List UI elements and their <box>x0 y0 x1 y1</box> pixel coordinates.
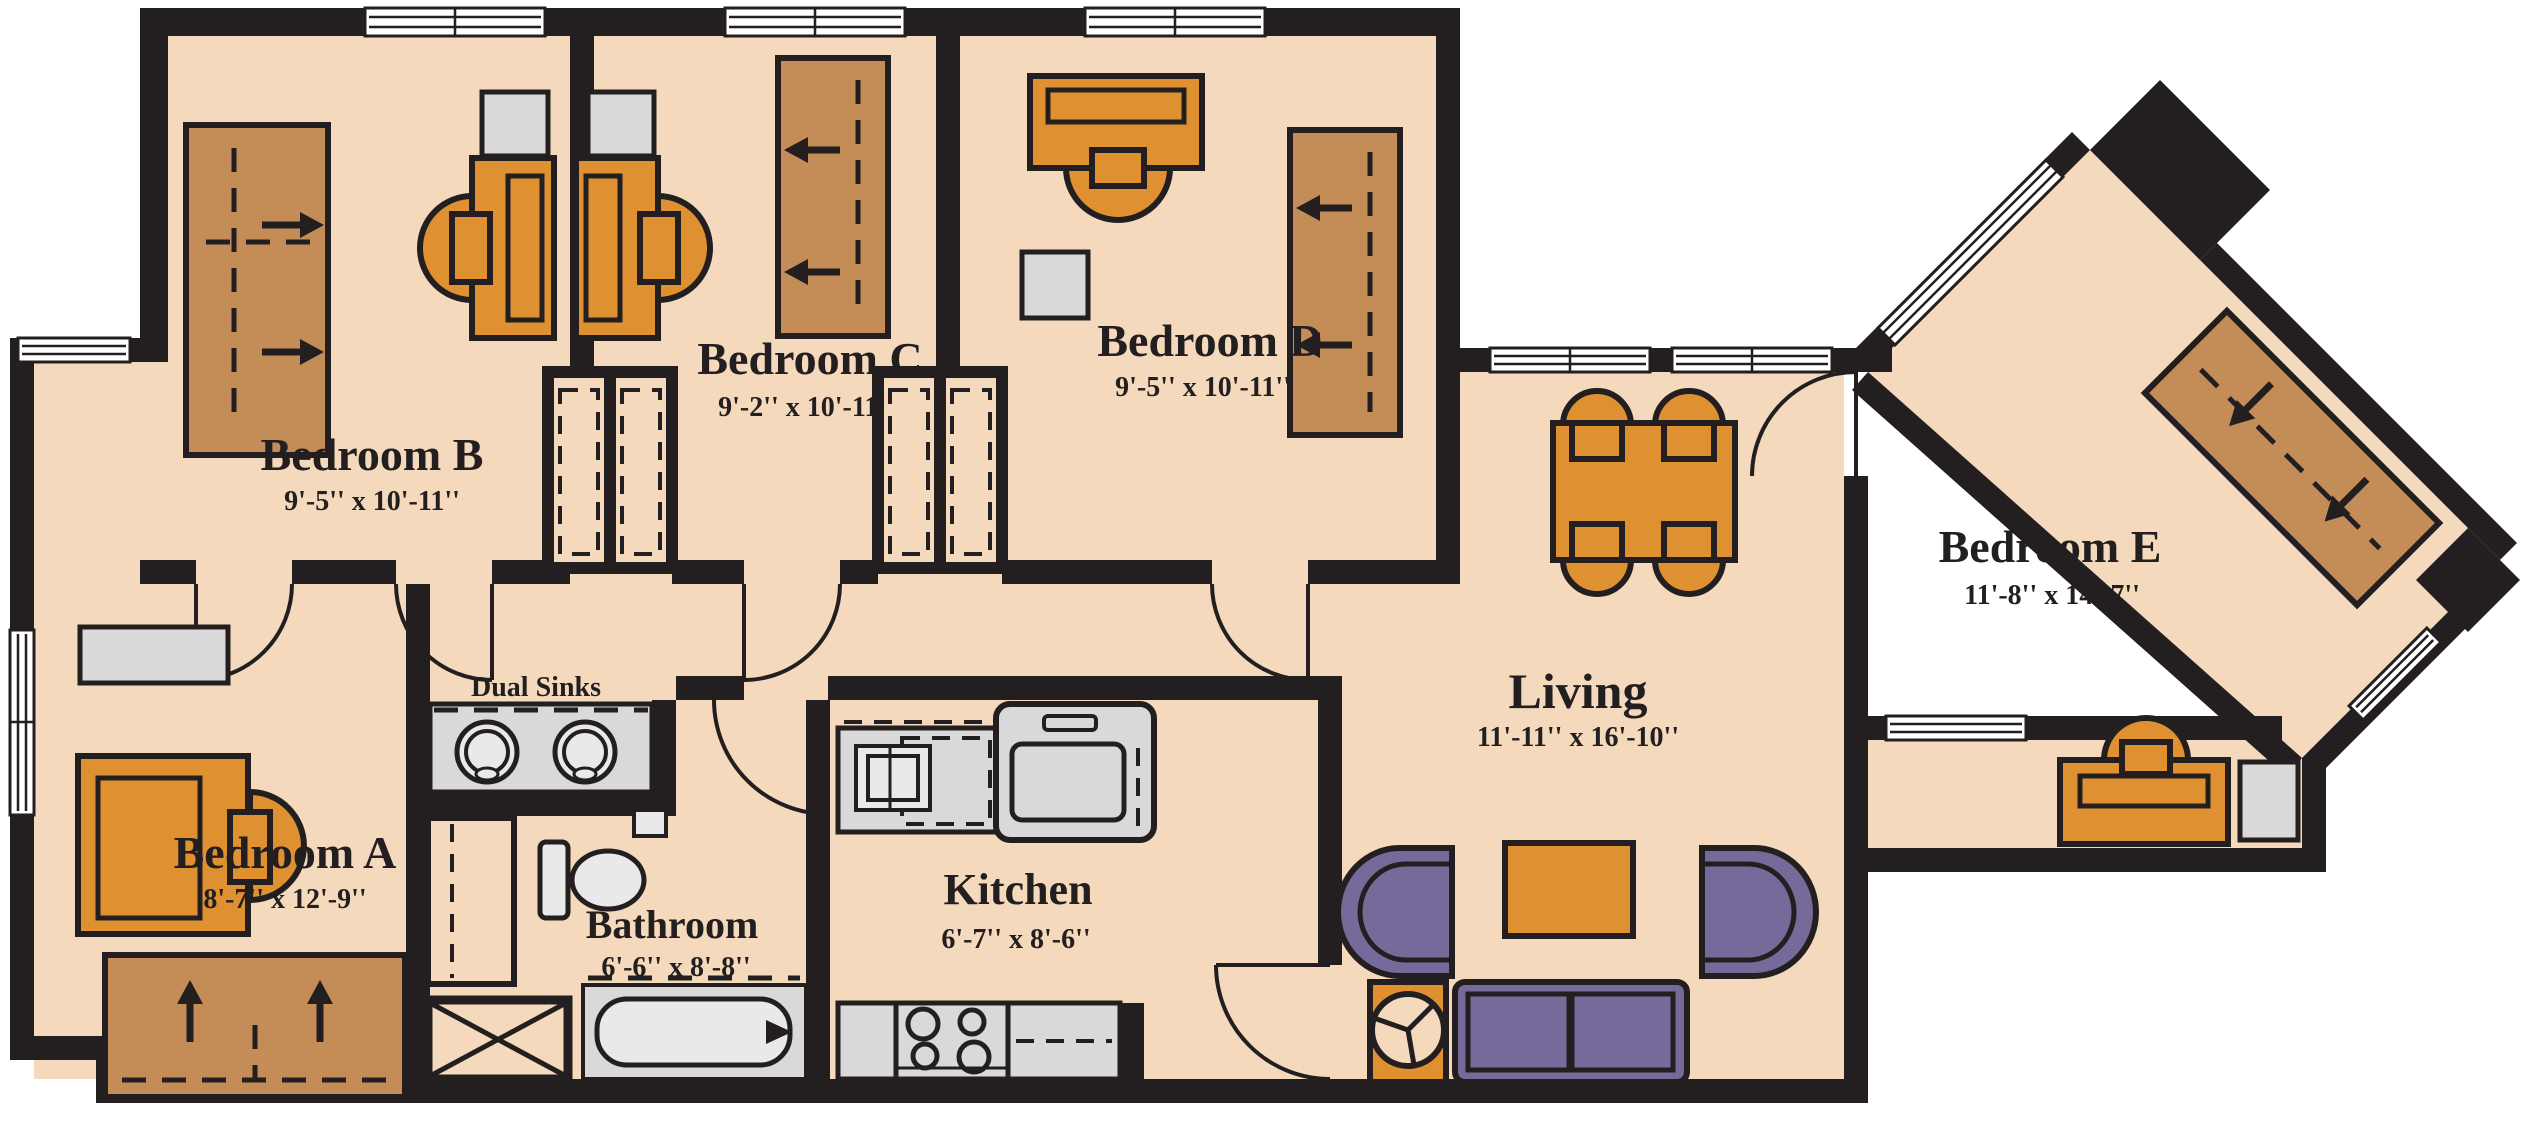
window-icon <box>365 8 545 36</box>
bedroom-a-dims: 8'-7'' x 12'-9'' <box>203 884 366 915</box>
dresser-icon <box>588 92 654 156</box>
bed-icon <box>186 125 328 455</box>
desk-icon <box>1030 76 1202 186</box>
bedroom-e-dims: 11'-8'' x 14'-7'' <box>1964 580 2140 611</box>
sink-icon <box>555 722 615 782</box>
bedroom-d-dims: 9'-5'' x 10'-11'' <box>1115 372 1291 403</box>
bedroom-b-dims: 9'-5'' x 10'-11'' <box>284 486 460 517</box>
bedroom-d-label: Bedroom D <box>1097 315 1322 366</box>
window-icon <box>725 8 905 36</box>
window-icon <box>1672 348 1832 372</box>
closet-icon <box>428 818 514 984</box>
bedroom-e-label: Bedroom E <box>1939 521 2162 572</box>
bed-icon <box>778 58 888 336</box>
bathtub-icon <box>583 978 806 1079</box>
window-icon <box>18 338 130 362</box>
bathroom-label: Bathroom <box>586 902 759 947</box>
dual-sinks-label: Dual Sinks <box>471 672 601 703</box>
sofa-icon <box>1455 982 1687 1082</box>
living-dims: 11'-11'' x 16'-10'' <box>1477 722 1679 753</box>
closet-icon <box>548 372 672 568</box>
bed-icon <box>1290 130 1400 435</box>
bed-icon <box>105 955 405 1097</box>
dresser-icon <box>482 92 548 156</box>
kitchen-sink-icon <box>838 722 996 832</box>
medicine-cabinet-icon <box>634 810 666 836</box>
desk-icon <box>2060 742 2228 844</box>
bedroom-c-label: Bedroom C <box>697 333 922 384</box>
refrigerator-icon <box>996 704 1154 840</box>
counter-icon <box>1008 1003 1120 1079</box>
window-icon <box>1490 348 1650 372</box>
side-table-icon <box>1370 982 1446 1082</box>
counter-icon <box>838 1003 896 1079</box>
closet-icon <box>878 372 1002 568</box>
window-icon <box>10 630 34 815</box>
floor-plan-svg: Bedroom A 8'-7'' x 12'-9'' Bedroom B 9'-… <box>0 0 2522 1138</box>
dresser-icon <box>2240 762 2298 840</box>
kitchen-label: Kitchen <box>943 865 1092 914</box>
bedroom-a-label: Bedroom A <box>174 827 397 878</box>
coffee-table-icon <box>1505 843 1633 936</box>
linen-closet-icon <box>428 1000 568 1079</box>
sink-icon <box>457 722 517 782</box>
bathroom-dims: 6'-6'' x 8'-8'' <box>601 952 750 983</box>
dual-sink-vanity-icon <box>430 704 652 792</box>
dresser-icon <box>80 627 228 683</box>
window-icon <box>1085 8 1265 36</box>
bedroom-c-dims: 9'-2'' x 10'-11'' <box>718 392 894 423</box>
floor-plan: Bedroom A 8'-7'' x 12'-9'' Bedroom B 9'-… <box>0 0 2522 1138</box>
armchair-icon <box>1338 848 1452 976</box>
window-icon <box>1886 716 2026 740</box>
living-label: Living <box>1509 663 1648 719</box>
kitchen-dims: 6'-7'' x 8'-6'' <box>941 924 1090 955</box>
stove-icon <box>896 1003 1008 1079</box>
armchair-icon <box>1702 848 1816 976</box>
dresser-icon <box>1022 252 1088 318</box>
bedroom-b-label: Bedroom B <box>261 429 484 480</box>
